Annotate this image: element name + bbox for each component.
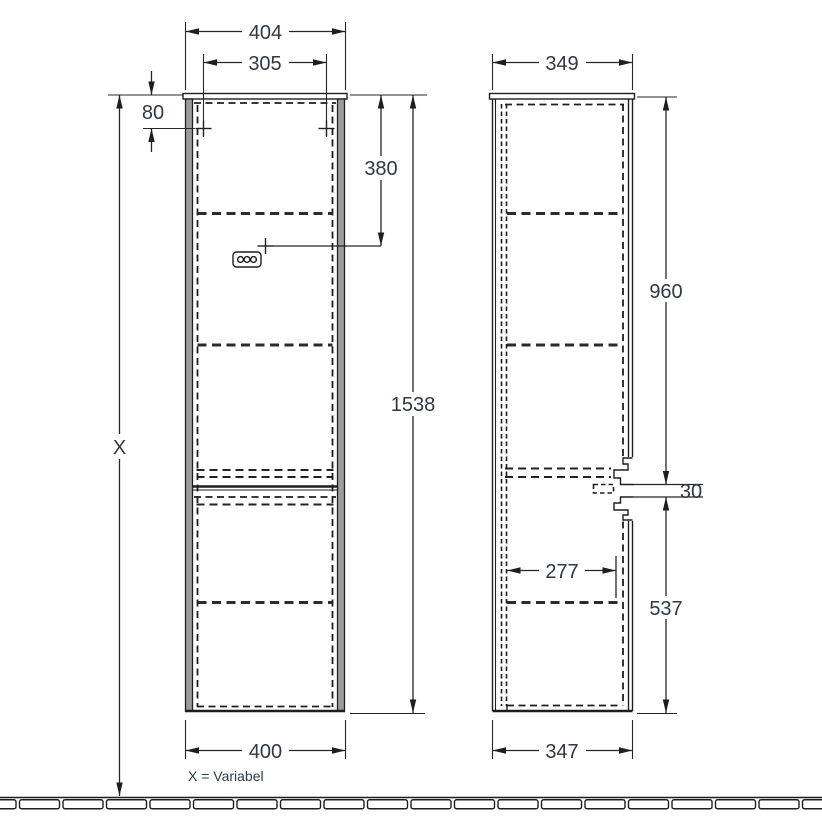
dim-label: 404 [249,22,282,44]
dim-lower-section-height: 537 [637,497,683,714]
dim-label: 305 [248,53,281,75]
socket-position-cross-icon [258,238,274,254]
floor [0,798,822,811]
dim-handle-gap: 30 [634,481,704,503]
side-shelf-lines [505,214,622,603]
cabinet-dimension-drawing: 404 305 80 380 153 [0,0,822,822]
dim-label: 400 [249,741,282,763]
socket-outlet-icon [233,252,261,267]
variable-note: X = Variabel [188,768,264,784]
dim-mount-hole-offset: 80 [108,71,195,152]
dim-label: X [113,437,126,459]
floor-tiles [0,799,822,810]
dim-label: 347 [545,741,578,763]
dim-front-width-bottom: 400 [186,720,346,763]
front-left-side-panel [186,99,193,711]
side-door-front-edge [629,99,633,711]
dim-side-depth-top: 349 [493,52,633,90]
dim-inner-depth: 277 [507,556,616,598]
dim-label: 30 [680,481,702,503]
dim-upper-section-height: 960 [637,97,683,485]
dim-label: 1538 [391,394,436,416]
dim-side-depth-bottom: 347 [493,720,633,763]
dim-label: 537 [649,598,682,620]
side-view [490,94,636,712]
dim-floor-height: X [113,95,126,796]
side-top-panel [490,94,635,100]
front-view [183,94,381,712]
handle-recess-hidden [594,485,614,494]
front-centre-split [193,470,337,505]
drawing-canvas: 404 305 80 380 153 [0,0,822,822]
dim-cabinet-height: 1538 [350,95,435,714]
dim-socket-from-top: 380 [350,95,427,246]
front-top-panel [183,94,347,100]
front-door-outline [194,103,336,707]
dim-label: 277 [545,561,578,583]
handle-profile [594,457,636,521]
dim-label: 380 [364,158,397,180]
side-hidden-lines [502,104,625,711]
dim-label: 960 [649,281,682,303]
dim-label: 349 [545,53,578,75]
front-right-side-panel [338,99,345,711]
front-shelf-lines [198,214,333,603]
front-dimensions: 404 305 80 380 153 [108,21,435,796]
dim-label: 80 [142,102,164,124]
side-dimensions: 349 960 30 537 277 [493,52,704,763]
